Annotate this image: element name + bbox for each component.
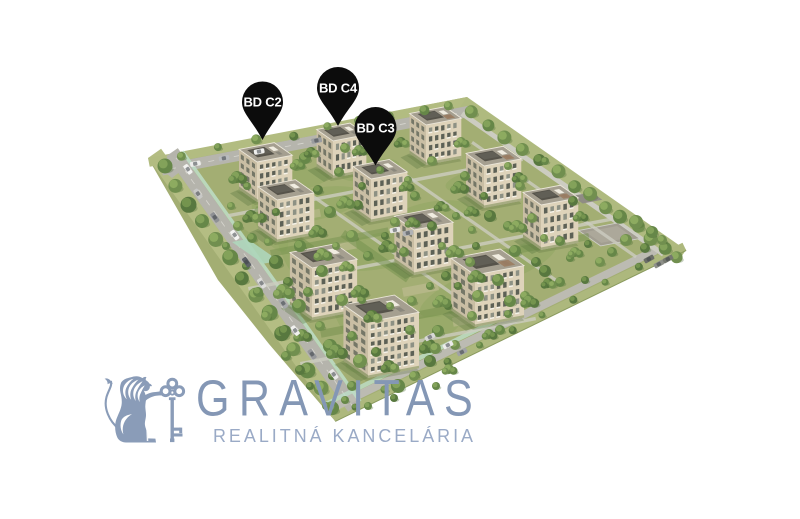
svg-text:REALITNÁ KANCELÁRIA: REALITNÁ KANCELÁRIA: [213, 426, 476, 446]
svg-text:BD C2: BD C2: [243, 95, 281, 110]
svg-text:BD C4: BD C4: [319, 81, 358, 96]
svg-text:GRAVITAS: GRAVITAS: [196, 370, 482, 427]
svg-text:BD C3: BD C3: [356, 121, 394, 136]
